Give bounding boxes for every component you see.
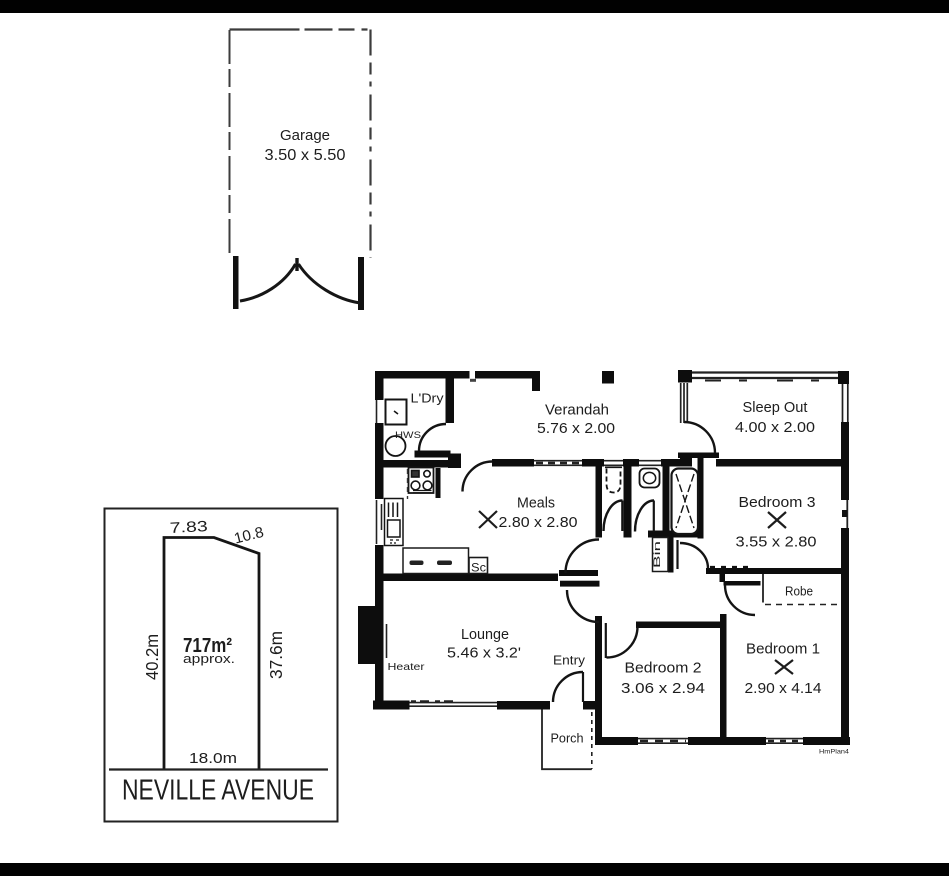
svg-text:Bedroom 3: Bedroom 3 <box>739 495 816 511</box>
svg-text:18.0m: 18.0m <box>189 750 237 767</box>
svg-text:5.76 x 2.00: 5.76 x 2.00 <box>537 420 615 437</box>
svg-text:Porch: Porch <box>551 732 584 746</box>
svg-text:Sleep Out: Sleep Out <box>743 400 808 416</box>
svg-text:HWS: HWS <box>395 430 421 440</box>
svg-text:Garage: Garage <box>280 127 330 144</box>
svg-text:Bedroom 2: Bedroom 2 <box>625 661 702 677</box>
svg-text:4.00 x 2.00: 4.00 x 2.00 <box>735 419 815 436</box>
svg-text:3.50 x 5.50: 3.50 x 5.50 <box>265 147 346 164</box>
svg-text:2.80 x 2.80: 2.80 x 2.80 <box>499 514 578 531</box>
svg-text:Sc: Sc <box>471 561 486 575</box>
svg-text:3.06 x 2.94: 3.06 x 2.94 <box>621 680 705 697</box>
svg-text:40.2m: 40.2m <box>142 634 162 680</box>
svg-text:Entry: Entry <box>553 654 586 668</box>
svg-text:HmPlan4: HmPlan4 <box>819 750 850 756</box>
svg-text:Meals: Meals <box>517 496 555 512</box>
svg-text:2.90 x 4.14: 2.90 x 4.14 <box>745 680 822 697</box>
svg-text:NEVILLE AVENUE: NEVILLE AVENUE <box>122 775 314 807</box>
svg-text:Bin: Bin <box>652 541 663 568</box>
svg-text:L'Dry: L'Dry <box>411 391 445 406</box>
svg-text:3.55 x 2.80: 3.55 x 2.80 <box>736 534 817 551</box>
svg-text:Heater: Heater <box>388 661 426 673</box>
svg-text:approx.: approx. <box>183 651 235 666</box>
svg-text:Robe: Robe <box>785 584 813 599</box>
svg-text:Verandah: Verandah <box>545 403 609 419</box>
svg-text:5.46 x 3.2': 5.46 x 3.2' <box>447 645 521 662</box>
svg-text:7.83: 7.83 <box>169 518 208 537</box>
svg-text:Lounge: Lounge <box>461 627 509 643</box>
svg-text:Bedroom 1: Bedroom 1 <box>746 642 820 658</box>
svg-text:37.6m: 37.6m <box>266 631 286 679</box>
